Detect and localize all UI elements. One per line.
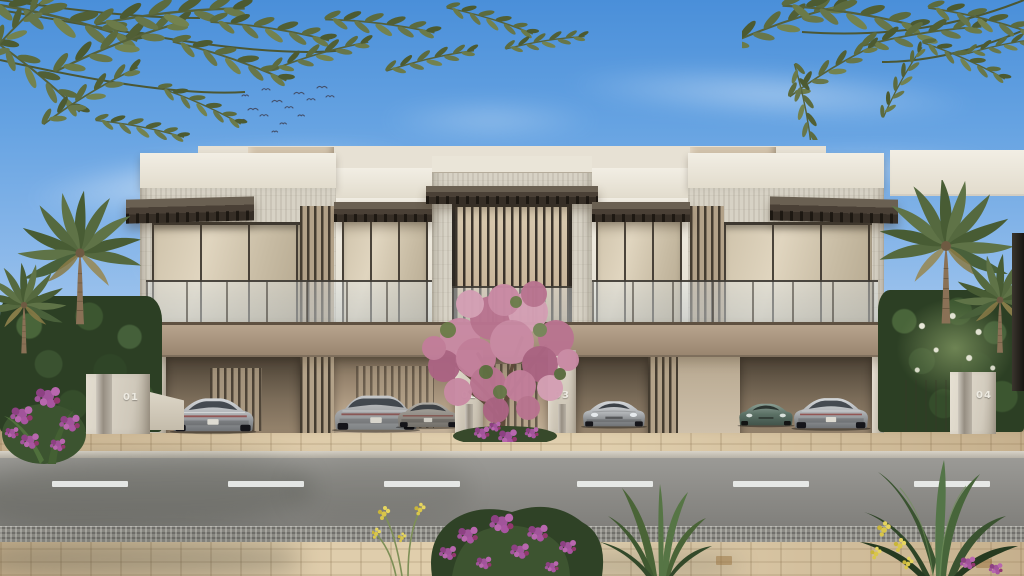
spiky-plant — [600, 484, 712, 576]
olive-branch-top-left — [0, 0, 600, 160]
roof-slab-outer-right — [688, 153, 884, 188]
parapet-inner-right — [592, 168, 688, 200]
unit-pillar-04: 04 — [950, 372, 996, 434]
ground-wall-beige — [678, 352, 740, 433]
foreground-planting-center — [372, 478, 712, 576]
side-gate-right — [905, 380, 950, 432]
signage-pylon — [1012, 233, 1024, 391]
pergola-canopy-inner-left — [334, 202, 432, 222]
architectural-rendering-scene: 02 03 — [0, 0, 1024, 576]
glass-balustrade-right — [592, 280, 878, 324]
tower-canopy — [426, 186, 598, 204]
glass-balustrade-left — [146, 280, 432, 324]
pergola-canopy-inner-right — [592, 202, 690, 222]
parapet-inner-left — [336, 168, 432, 200]
unit-number-01: 01 — [114, 392, 148, 403]
louver-screen-ground-2 — [648, 352, 678, 433]
flowering-tree — [400, 242, 610, 442]
bougainvillea-bush-left — [0, 356, 112, 468]
tropical-plants-right — [838, 438, 1024, 576]
unit-number-04: 04 — [972, 390, 996, 401]
pillar-metal-strip — [958, 372, 972, 434]
olive-branch-top-right — [742, 0, 1024, 140]
